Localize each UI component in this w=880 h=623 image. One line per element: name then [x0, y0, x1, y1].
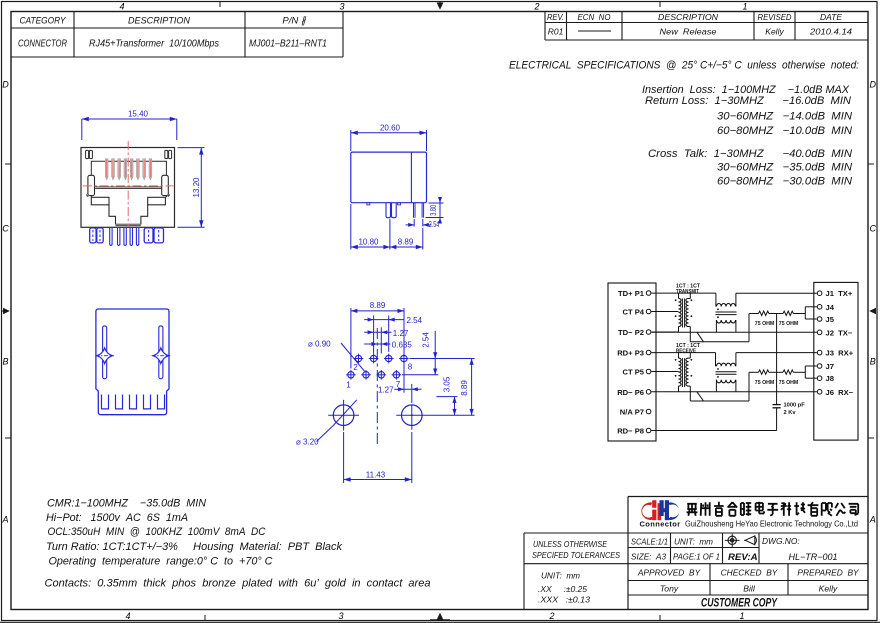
- svg-text:30−60MHZ −14.0dB MIN: 30−60MHZ −14.0dB MIN: [717, 111, 852, 123]
- svg-text:DESCRIPTION: DESCRIPTION: [658, 12, 719, 22]
- svg-text:2: 2: [533, 2, 539, 12]
- svg-text:10.80: 10.80: [358, 238, 379, 247]
- svg-text:C: C: [2, 224, 9, 234]
- svg-text:A: A: [869, 515, 876, 525]
- svg-text:J7: J7: [826, 362, 834, 371]
- svg-text:2.54: 2.54: [421, 332, 430, 348]
- svg-text:.XX :±0.25: .XX :±0.25: [538, 584, 587, 594]
- svg-text:2 Kv: 2 Kv: [784, 410, 797, 416]
- svg-text:Bill: Bill: [743, 584, 756, 594]
- svg-text:J8: J8: [826, 374, 834, 383]
- svg-text:REVISED: REVISED: [758, 12, 792, 22]
- svg-text:30−60MHZ −35.0dB MIN: 30−60MHZ −35.0dB MIN: [717, 162, 852, 174]
- svg-text:CT P4: CT P4: [622, 308, 644, 317]
- svg-text:UNLESS OTHERWISE: UNLESS OTHERWISE: [533, 539, 607, 549]
- svg-text:TD− P2: TD− P2: [618, 328, 644, 337]
- svg-text:RD+ P3: RD+ P3: [617, 349, 644, 358]
- svg-text:CT P5: CT P5: [622, 368, 644, 377]
- svg-text:GuiZhousheng HeYao Electronic: GuiZhousheng HeYao Electronic Technology…: [685, 520, 858, 529]
- svg-text:SIZE: A3: SIZE: A3: [631, 553, 666, 562]
- svg-text:20.60: 20.60: [380, 124, 401, 133]
- svg-text:CATEGORY: CATEGORY: [20, 16, 67, 27]
- svg-text:N/A P7: N/A P7: [620, 408, 644, 417]
- svg-text:DWG.NO:: DWG.NO:: [762, 536, 800, 546]
- svg-text:1.27: 1.27: [378, 386, 394, 395]
- svg-text:D: D: [870, 80, 877, 90]
- svg-text:CONNECTOR: CONNECTOR: [18, 39, 67, 50]
- svg-text:J6 RX−: J6 RX−: [826, 388, 854, 397]
- svg-text:New Release: New Release: [660, 27, 717, 37]
- svg-text:1.27: 1.27: [393, 329, 409, 338]
- svg-text:3: 3: [338, 611, 343, 621]
- svg-text:CUSTOMER COPY: CUSTOMER COPY: [701, 598, 778, 610]
- svg-text:SCALE:1/1: SCALE:1/1: [631, 538, 668, 547]
- svg-text:1: 1: [742, 2, 747, 12]
- svg-text:⌀ 3.20: ⌀ 3.20: [296, 438, 319, 447]
- svg-text:B: B: [870, 357, 876, 367]
- svg-text:2.54: 2.54: [429, 220, 440, 229]
- svg-text:4: 4: [125, 611, 130, 621]
- svg-text:0.635: 0.635: [392, 341, 413, 350]
- svg-text:2: 2: [548, 611, 554, 621]
- svg-text:Turn Ratio: 1CT:1CT+/−3% H: Turn Ratio: 1CT:1CT+/−3% Housing Materia…: [46, 541, 342, 553]
- svg-text:2: 2: [353, 363, 358, 372]
- svg-text:TRANSMIT: TRANSMIT: [676, 289, 700, 295]
- svg-text:15.40: 15.40: [128, 110, 149, 119]
- svg-text:Tony: Tony: [660, 584, 679, 594]
- svg-text:Operating temperature range:: Operating temperature range:0° C to +70°…: [49, 556, 273, 568]
- svg-text:J3 RX+: J3 RX+: [826, 349, 854, 358]
- svg-text:60−80MHZ −10.0dB MIN: 60−80MHZ −10.0dB MIN: [717, 125, 852, 137]
- svg-text:HL−TR−001: HL−TR−001: [788, 552, 837, 562]
- svg-text:J4: J4: [826, 303, 835, 312]
- svg-text:REV.: REV.: [547, 12, 564, 22]
- svg-text:UNIT: mm: UNIT: mm: [541, 571, 580, 581]
- svg-text:3: 3: [339, 2, 344, 12]
- svg-text:RECEIVE: RECEIVE: [676, 348, 696, 354]
- svg-text:ECN NO: ECN NO: [578, 12, 611, 22]
- svg-text:PREPARED BY: PREPARED BY: [797, 568, 860, 578]
- svg-text:Hi−Pot: 1500v AC 6S 1mA: Hi−Pot: 1500v AC 6S 1mA: [46, 512, 188, 524]
- svg-text:CHECKED BY: CHECKED BY: [721, 568, 779, 578]
- svg-text:UNIT: mm: UNIT: mm: [674, 538, 713, 547]
- svg-text:8: 8: [408, 363, 413, 372]
- svg-text:11.43: 11.43: [366, 471, 386, 480]
- svg-text:75 OHM: 75 OHM: [755, 321, 775, 327]
- svg-text:Return Loss: 1−30MHZ −16: Return Loss: 1−30MHZ −16.0dB MIN: [645, 95, 851, 107]
- svg-text:J1 TX+: J1 TX+: [826, 289, 853, 298]
- svg-text:1000 pF: 1000 pF: [784, 403, 806, 409]
- svg-text:DATE: DATE: [820, 12, 842, 22]
- svg-text:J5: J5: [826, 315, 835, 324]
- svg-text:C: C: [870, 224, 877, 234]
- svg-text:D: D: [2, 80, 9, 90]
- svg-text:8.89: 8.89: [460, 380, 469, 396]
- svg-text:APPROVED BY: APPROVED BY: [637, 568, 702, 578]
- svg-text:RD− P8: RD− P8: [617, 427, 644, 436]
- svg-text:Connector: Connector: [639, 520, 680, 529]
- svg-text:RD− P6: RD− P6: [617, 388, 644, 397]
- svg-text:P/N ∦: P/N ∦: [282, 16, 306, 27]
- svg-text:3.05: 3.05: [442, 376, 451, 392]
- svg-text:MJ001–B211–RNT1: MJ001–B211–RNT1: [249, 39, 327, 50]
- svg-text:R01: R01: [548, 27, 564, 37]
- svg-text:A: A: [1, 515, 8, 525]
- svg-text:2010.4.14: 2010.4.14: [809, 27, 852, 37]
- svg-text:1: 1: [739, 611, 744, 621]
- svg-text:ELECTRICAL SPECIFICATIONS @: ELECTRICAL SPECIFICATIONS @ 25° C+/−5° C…: [509, 60, 859, 72]
- svg-text:4: 4: [119, 2, 124, 12]
- svg-text:SPECIFED TOLERANCES: SPECIFED TOLERANCES: [532, 550, 620, 560]
- svg-text:RJ45+Transformer 10/100Mbps: RJ45+Transformer 10/100Mbps: [89, 39, 219, 50]
- svg-text:2.54: 2.54: [407, 316, 423, 325]
- svg-text:.XXX :±0.13: .XXX :±0.13: [538, 595, 590, 605]
- svg-text:3.80: 3.80: [429, 204, 438, 215]
- svg-text:PAGE:1 OF 1: PAGE:1 OF 1: [673, 553, 720, 562]
- svg-text:B: B: [2, 357, 8, 367]
- svg-text:Kelly: Kelly: [765, 27, 784, 37]
- svg-text:1: 1: [346, 381, 351, 390]
- svg-text:Cross Talk: 1−30MHZ −40: Cross Talk: 1−30MHZ −40.0dB MIN: [648, 148, 852, 160]
- svg-text:TD+ P1: TD+ P1: [618, 289, 645, 298]
- svg-text:OCL:350uH MIN @ 100KHZ 100: OCL:350uH MIN @ 100KHZ 100mV 8mA DC: [48, 526, 266, 538]
- svg-text:75 OHM: 75 OHM: [755, 380, 775, 386]
- svg-text:REV:A: REV:A: [728, 552, 758, 563]
- svg-text:Kelly: Kelly: [819, 584, 838, 594]
- svg-text:8.89: 8.89: [370, 301, 386, 310]
- svg-text:CMR:1−100MHZ −35.0dB MIN: CMR:1−100MHZ −35.0dB MIN: [47, 498, 206, 510]
- svg-text:75 OHM: 75 OHM: [779, 380, 799, 386]
- svg-text:Contacts: 0.35mm thick phos: Contacts: 0.35mm thick phos bronze plate…: [45, 578, 431, 590]
- svg-text:DESCRIPTION: DESCRIPTION: [128, 16, 190, 27]
- svg-text:8.89: 8.89: [398, 238, 414, 247]
- svg-text:60−80MHZ −30.0dB MIN: 60−80MHZ −30.0dB MIN: [717, 176, 852, 188]
- svg-text:⌀ 0.90: ⌀ 0.90: [308, 340, 331, 349]
- svg-text:J2 TX−: J2 TX−: [826, 328, 853, 337]
- svg-text:13.20: 13.20: [192, 177, 201, 198]
- svg-text:75 OHM: 75 OHM: [779, 321, 799, 327]
